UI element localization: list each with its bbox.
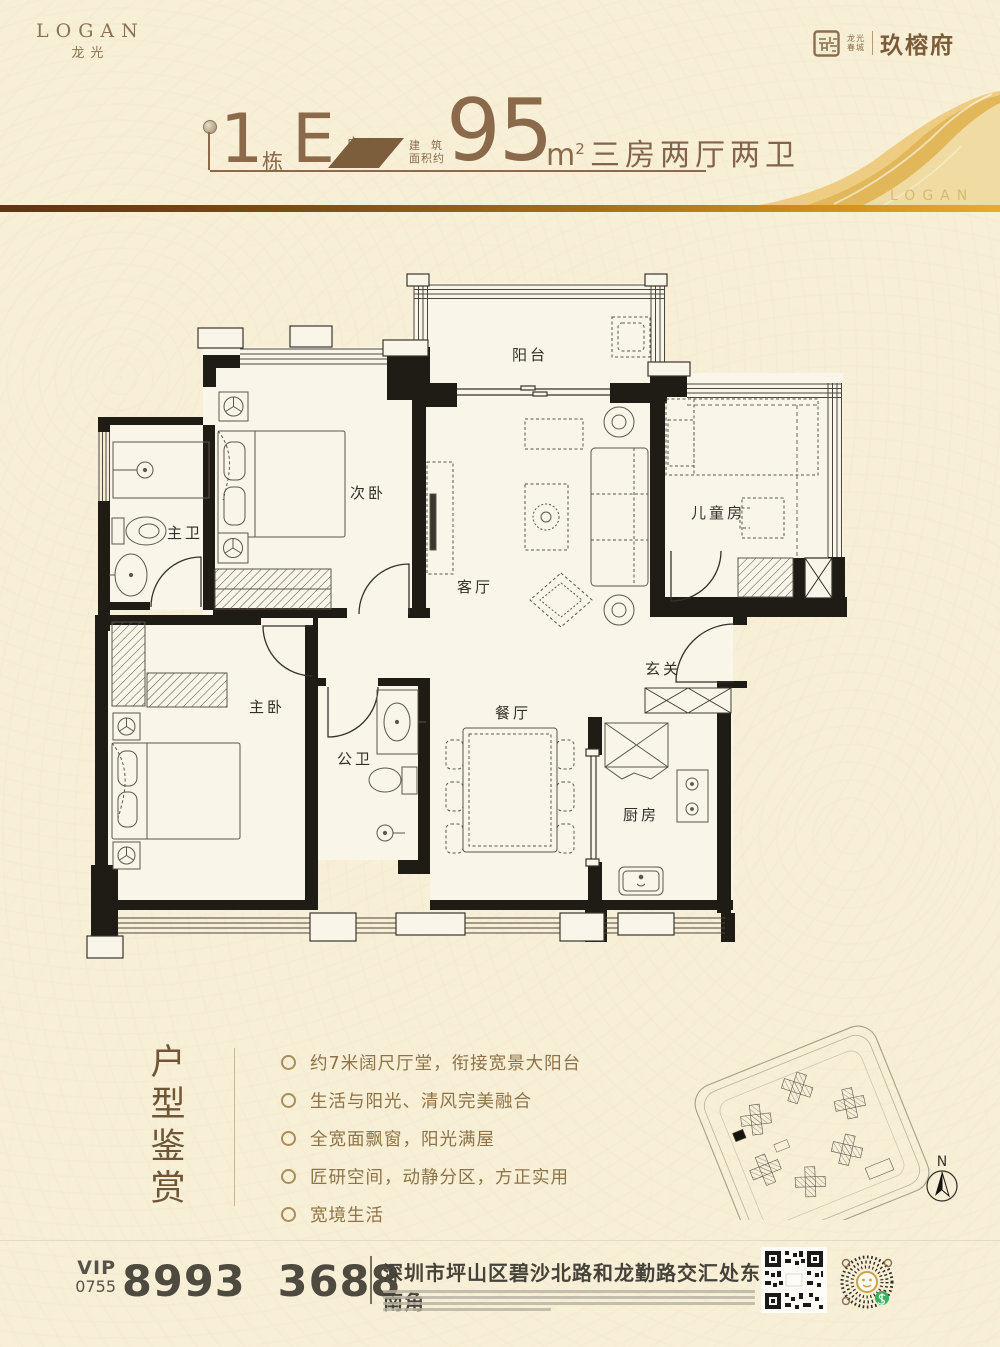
phone-number: 8993 3688 xyxy=(122,1261,401,1304)
features-divider xyxy=(234,1048,235,1206)
logan-logo-cn: 龙光 xyxy=(36,42,145,61)
label-bedroom2: 次卧 xyxy=(350,484,386,502)
label-balcony: 阳台 xyxy=(512,346,548,364)
block-unit: 栋 xyxy=(262,146,283,176)
bullet-ring-icon xyxy=(281,1169,296,1184)
headline-stem xyxy=(208,132,210,170)
area-unit: m2 xyxy=(546,138,585,173)
features-section: 户型鉴赏 约7米阔尺厅堂，衔接宽景大阳台 生活与阳光、清风完美融合 全宽面飘窗，… xyxy=(150,1042,581,1227)
fineprint-line xyxy=(383,1290,755,1293)
features-list: 约7米阔尺厅堂，衔接宽景大阳台 生活与阳光、清风完美融合 全宽面飘窗，阳光满屋 … xyxy=(281,1050,581,1227)
bullet-ring-icon xyxy=(281,1207,296,1222)
feature-text: 生活与阳光、清风完美融合 xyxy=(310,1088,532,1113)
site-map: N xyxy=(640,1020,1000,1220)
logan-logo-en: LOGAN xyxy=(36,20,145,42)
vip-label: VIP xyxy=(46,1259,116,1279)
label-living: 客厅 xyxy=(457,578,493,596)
project-name: 玖榕府 xyxy=(880,26,955,60)
feature-item: 约7米阔尺厅堂，衔接宽景大阳台 xyxy=(281,1050,581,1075)
area-value: 95 xyxy=(446,88,551,174)
divider-parallelogram xyxy=(328,138,404,168)
block-number: 1 xyxy=(220,106,263,174)
compass-icon: N xyxy=(927,1154,957,1201)
footer-divider xyxy=(370,1256,372,1304)
qr-code-icon xyxy=(761,1247,827,1313)
footer-separator xyxy=(0,1240,1000,1241)
feature-item: 匠研空间，动静分区，方正实用 xyxy=(281,1164,581,1189)
fineprint-line xyxy=(383,1302,755,1305)
rooms-summary: 三房两厅两卫 xyxy=(590,130,800,174)
logan-logo: LOGAN 龙光 xyxy=(36,20,145,61)
area-code: 0755 xyxy=(46,1279,116,1296)
compass-label: N xyxy=(937,1154,947,1170)
features-title: 户型鉴赏 xyxy=(150,1042,188,1210)
label-master-bedroom: 主卧 xyxy=(249,698,285,716)
site-boundary xyxy=(689,1020,935,1220)
fineprint-line xyxy=(383,1308,551,1311)
current-building-marker xyxy=(733,1129,747,1141)
bullet-ring-icon xyxy=(281,1093,296,1108)
label-guest-bath: 公卫 xyxy=(337,750,373,768)
feature-item: 全宽面飘窗，阳光满屋 xyxy=(281,1126,581,1151)
vip-block: VIP 0755 xyxy=(46,1259,116,1296)
feature-text: 匠研空间，动静分区，方正实用 xyxy=(310,1164,569,1189)
shaft xyxy=(805,558,832,598)
feature-text: 约7米阔尺厅堂，衔接宽景大阳台 xyxy=(310,1050,581,1075)
header-gradient-bar xyxy=(0,205,1000,212)
disclaimer-fineprint xyxy=(383,1290,755,1314)
feature-text: 全宽面飘窗，阳光满屋 xyxy=(310,1126,495,1151)
seal-line2: 春城 xyxy=(847,43,865,52)
label-master-bath: 主卫 xyxy=(167,524,203,542)
logan-watermark: LOGAN xyxy=(890,188,974,204)
feature-text: 宽境生活 xyxy=(310,1202,384,1227)
site-buildings xyxy=(718,1046,895,1220)
seal-subtitle: 龙光 春城 xyxy=(847,34,865,52)
project-logo: 龙光 春城 玖榕府 xyxy=(813,26,955,60)
fineprint-line xyxy=(383,1296,755,1299)
area-unit-sup: 2 xyxy=(575,140,585,158)
label-foyer: 玄关 xyxy=(645,660,681,678)
label-kitchen: 厨房 xyxy=(623,806,659,824)
feature-item: 宽境生活 xyxy=(281,1202,581,1227)
feature-item: 生活与阳光、清风完美融合 xyxy=(281,1088,581,1113)
bullet-ring-icon xyxy=(281,1055,296,1070)
seal-icon xyxy=(813,30,840,57)
seal-line1: 龙光 xyxy=(847,34,865,43)
unit-letter: E xyxy=(292,106,335,174)
area-unit-m: m xyxy=(546,138,575,173)
circular-qr-code-icon xyxy=(836,1251,898,1313)
label-kids-room: 儿童房 xyxy=(691,504,745,522)
label-dining: 餐厅 xyxy=(495,704,531,722)
bullet-ring-icon xyxy=(281,1131,296,1146)
foyer-cabinet xyxy=(645,688,731,713)
floorplan-drawing: 阳台 次卧 主卫 客厅 儿童房 玄关 主卧 公卫 餐厅 厨房 xyxy=(85,270,945,960)
seal-divider xyxy=(872,31,873,55)
floorplan-flyer: LOGAN 龙光 龙光 春城 玖榕府 LOGAN 1 栋 xyxy=(0,0,1000,1347)
headline-dot-icon xyxy=(203,120,217,134)
